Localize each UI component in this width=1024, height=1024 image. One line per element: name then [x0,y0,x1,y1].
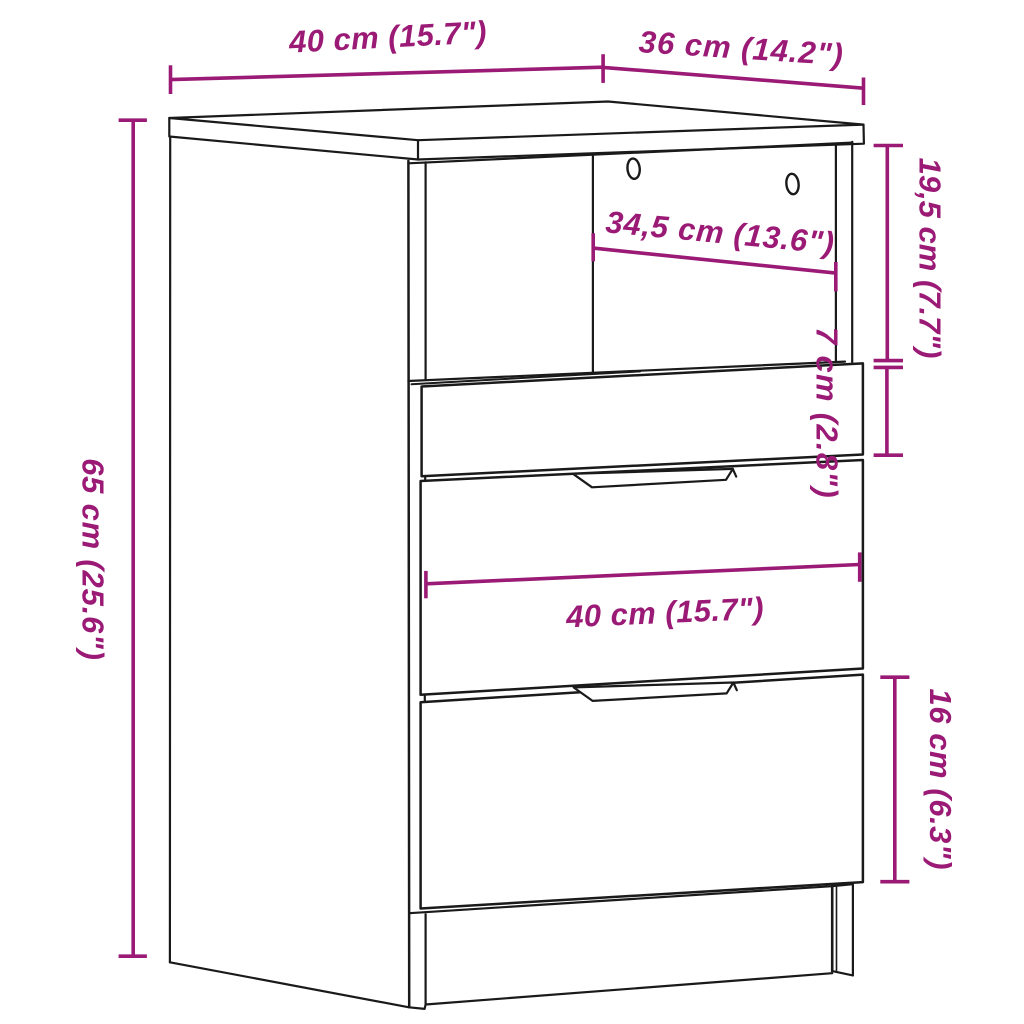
svg-text:7 cm (2.8"): 7 cm (2.8") [810,327,845,499]
svg-text:16 cm (6.3"): 16 cm (6.3") [923,689,958,871]
svg-text:65 cm (25.6"): 65 cm (25.6") [75,458,110,661]
svg-text:19,5 cm (7.7"): 19,5 cm (7.7") [913,158,948,359]
